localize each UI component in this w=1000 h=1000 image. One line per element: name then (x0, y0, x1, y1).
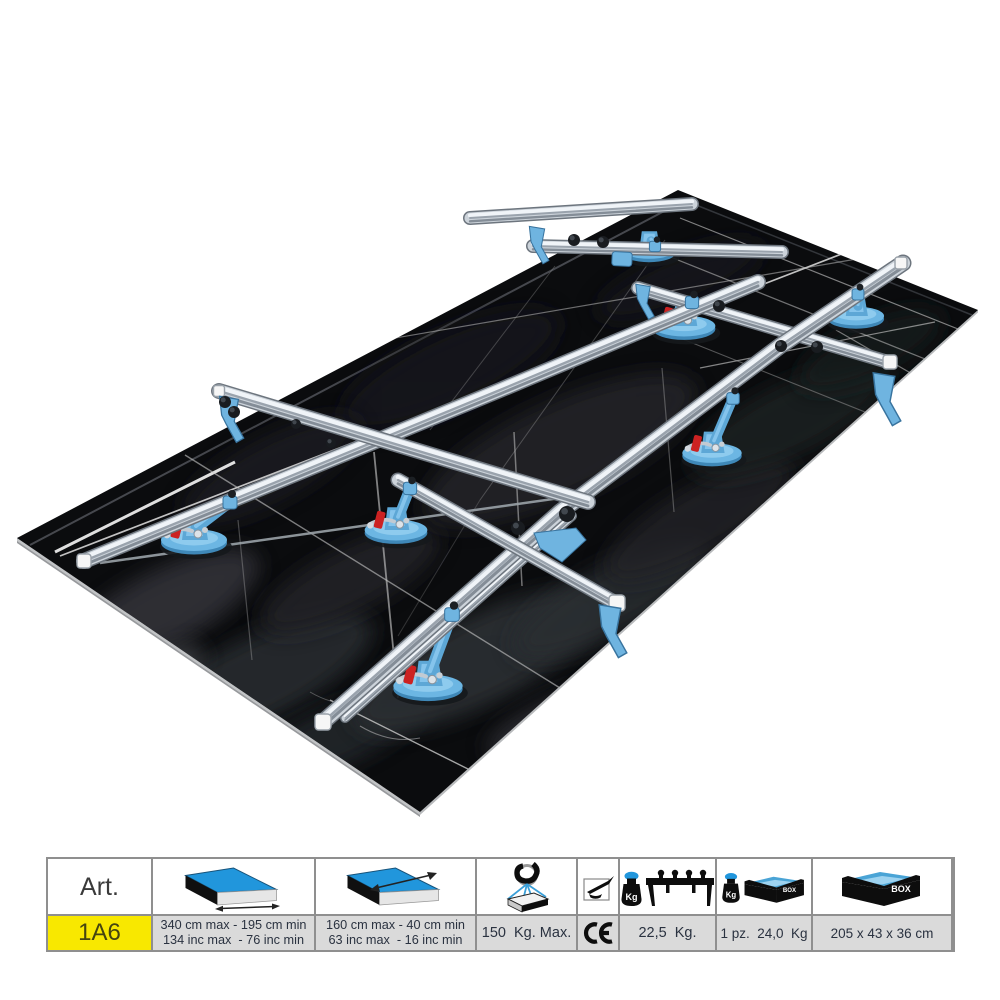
svg-text:Kg: Kg (626, 892, 638, 902)
svg-text:BOX: BOX (783, 887, 796, 894)
svg-text:Kg: Kg (726, 890, 737, 899)
svg-text:BOX: BOX (891, 884, 911, 894)
